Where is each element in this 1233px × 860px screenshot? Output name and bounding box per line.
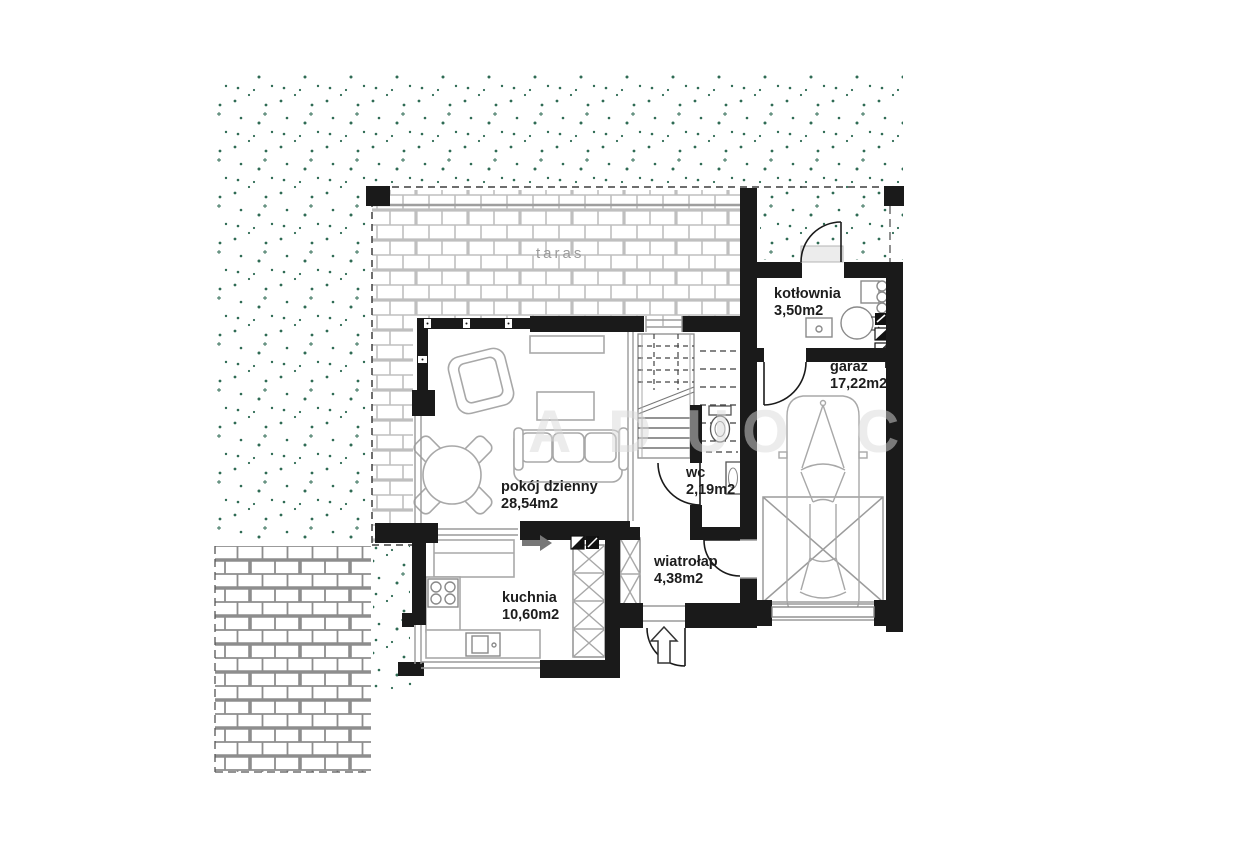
stove xyxy=(428,579,458,607)
watermark-letter: U xyxy=(686,398,729,465)
terrace-pillar-left xyxy=(366,186,390,206)
terrace-label: taras xyxy=(536,245,584,262)
watermark-letter: O xyxy=(742,398,789,465)
utility-sink xyxy=(806,318,832,337)
door-landing xyxy=(801,246,843,262)
svg-text:kuchnia: kuchnia xyxy=(502,590,558,606)
floor-plan-drawing: taras xyxy=(0,0,1233,860)
water-heater xyxy=(861,281,879,303)
window-band-top xyxy=(417,318,530,329)
garage-door xyxy=(772,604,874,620)
svg-text:2,19m2: 2,19m2 xyxy=(686,482,735,498)
watermark-letter: D xyxy=(608,398,651,465)
svg-text:28,54m2: 28,54m2 xyxy=(501,496,558,512)
sideboard xyxy=(530,336,604,353)
svg-text:garaż: garaż xyxy=(830,359,868,375)
floor-plan-canvas: taras xyxy=(0,0,1233,860)
patio-paving xyxy=(215,546,371,772)
svg-text:kotłownia: kotłownia xyxy=(774,286,842,302)
terrace-pillar-right xyxy=(884,186,904,206)
watermark-letter: A xyxy=(528,398,571,465)
vestibule-closet xyxy=(620,538,640,610)
pipe-fitting xyxy=(877,303,887,313)
svg-text:10,60m2: 10,60m2 xyxy=(502,607,559,623)
patio xyxy=(215,546,371,772)
tall-wardrobe xyxy=(573,545,605,657)
watermark-letter: C xyxy=(856,398,899,465)
terrace-side-paving xyxy=(372,326,413,543)
garage-door-panel xyxy=(772,607,874,617)
svg-text:3,50m2: 3,50m2 xyxy=(774,303,823,319)
svg-text:wc: wc xyxy=(685,465,705,481)
pipe-fitting xyxy=(877,281,887,291)
pipe-fitting xyxy=(877,292,887,302)
room-label-kitchen: kuchnia 10,60m2 xyxy=(502,590,559,623)
svg-text:4,38m2: 4,38m2 xyxy=(654,571,703,587)
kitchen-counter-top xyxy=(434,540,514,577)
kitchen-sink xyxy=(466,633,500,656)
svg-text:pokój dzienny: pokój dzienny xyxy=(501,479,598,495)
svg-text:wiatrołap: wiatrołap xyxy=(653,554,718,570)
svg-text:17,22m2: 17,22m2 xyxy=(830,376,887,392)
